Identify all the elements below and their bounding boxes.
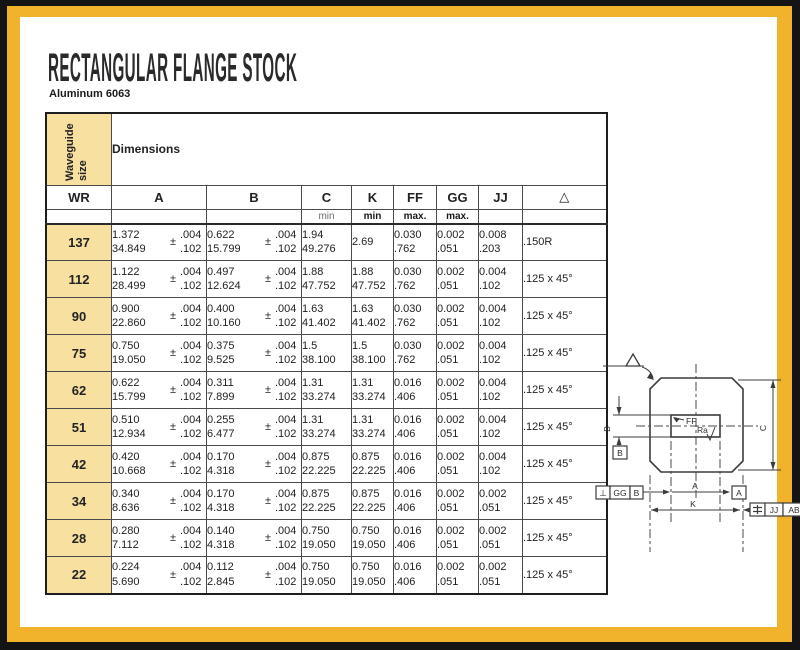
arrowhead-up-icon: [771, 380, 776, 388]
dim-c-cell: 1.8847.752: [302, 261, 352, 298]
dim-jj-cell: 0.004.102: [479, 372, 523, 409]
dim-a-cell: 0.42010.668 ± .004.102: [112, 446, 207, 483]
ff-mm: .406: [394, 575, 436, 589]
ff-inch: 0.030: [394, 339, 436, 353]
b-tol-mm: .102: [275, 427, 301, 441]
k-mm: 38.100: [352, 353, 393, 367]
k-inch: 1.5: [352, 339, 393, 353]
a-tol-inch: .004: [180, 339, 206, 353]
table-row: 28 0.2807.112 ± .004.102 0.1404.318 ± .0…: [46, 520, 607, 557]
b-inch: 0.622: [207, 228, 261, 242]
gg-mm: .051: [437, 353, 478, 367]
a-inch: 1.122: [112, 265, 166, 279]
a-tol-mm: .102: [180, 242, 206, 256]
b-mm: 4.318: [207, 464, 261, 478]
gg-inch: 0.002: [437, 376, 478, 390]
k-mm: 19.050: [352, 538, 393, 552]
jj-mm: .102: [479, 390, 522, 404]
b-mm: 10.160: [207, 316, 261, 330]
dimensions-header-cell: Dimensions: [112, 113, 607, 185]
arrowhead-right-icon: [663, 490, 670, 495]
fcf-perp-datum: B: [634, 488, 640, 498]
k-mm: 22.225: [352, 464, 393, 478]
a-tol-mm: .102: [180, 464, 206, 478]
k-inch: 0.750: [352, 560, 393, 574]
dimensions-table: Waveguide size Dimensions WR A B C K FF …: [45, 112, 608, 595]
dim-a-cell: 0.2245.690 ± .004.102: [112, 557, 207, 594]
col-header-ff: FF: [394, 185, 437, 209]
b-tol-mm: .102: [275, 575, 301, 589]
c-mm: 22.225: [302, 501, 351, 515]
b-mm: 4.318: [207, 538, 261, 552]
dim-k-cell: 0.75019.050: [352, 557, 394, 594]
subheader-ff-max: max.: [394, 209, 437, 224]
jj-inch: 0.004: [479, 376, 522, 390]
b-tol-mm: .102: [275, 538, 301, 552]
b-tol-inch: .004: [275, 265, 301, 279]
subheader-c-min: min: [302, 209, 352, 224]
b-tol-inch: .004: [275, 413, 301, 427]
b-inch: 0.112: [207, 560, 261, 574]
dim-gg-cell: 0.002.051: [437, 446, 479, 483]
corner-chamfer-triangle-icon: [626, 354, 640, 366]
ff-inch: 0.030: [394, 302, 436, 316]
b-tol-inch: .004: [275, 524, 301, 538]
ff-mm: .406: [394, 390, 436, 404]
arrowhead-up-icon: [617, 437, 622, 445]
gg-inch: 0.002: [437, 413, 478, 427]
plus-minus-sign: ±: [261, 347, 275, 359]
jj-inch: 0.002: [479, 560, 522, 574]
dim-ff-cell: 0.030.762: [394, 298, 437, 335]
subheader-row: min min max. max.: [46, 209, 607, 224]
b-tol-mm: .102: [275, 501, 301, 515]
b-tol-mm: .102: [275, 242, 301, 256]
gg-inch: 0.002: [437, 450, 478, 464]
jj-mm: .051: [479, 501, 522, 515]
table-row: 112 1.12228.499 ± .004.102 0.49712.624 ±…: [46, 261, 607, 298]
plus-minus-sign: ±: [261, 532, 275, 544]
table-row: 90 0.90022.860 ± .004.102 0.40010.160 ± …: [46, 298, 607, 335]
gg-mm: .051: [437, 575, 478, 589]
plus-minus-sign: ±: [166, 236, 180, 248]
a-inch: 0.420: [112, 450, 166, 464]
dim-c-cell: 1.9449.276: [302, 224, 352, 261]
dim-c-cell: 1.538.100: [302, 335, 352, 372]
a-inch: 0.280: [112, 524, 166, 538]
b-tol-inch: .004: [275, 302, 301, 316]
b-tol-mm: .102: [275, 353, 301, 367]
c-mm: 41.402: [302, 316, 351, 330]
col-header-wr: WR: [46, 185, 112, 209]
plus-minus-sign: ±: [261, 458, 275, 470]
c-mm: 19.050: [302, 538, 351, 552]
fcf-sym-tolerance: JJ: [770, 505, 779, 515]
a-mm: 12.934: [112, 427, 166, 441]
a-tol-inch: .004: [180, 450, 206, 464]
col-header-b: B: [207, 185, 302, 209]
a-mm: 15.799: [112, 390, 166, 404]
wr-cell: 22: [46, 557, 112, 594]
dim-a-cell: 0.62215.799 ± .004.102: [112, 372, 207, 409]
jj-mm: .051: [479, 575, 522, 589]
a-tol-inch: .004: [180, 302, 206, 316]
table-top-header-row: Waveguide size Dimensions: [46, 113, 607, 185]
k-dim-label: K: [690, 499, 696, 509]
k-mm: 22.225: [352, 501, 393, 515]
wr-cell: 42: [46, 446, 112, 483]
k-mm: 33.274: [352, 427, 393, 441]
plus-minus-sign: ±: [166, 310, 180, 322]
a-tol-mm: .102: [180, 575, 206, 589]
gg-mm: .051: [437, 242, 478, 256]
dim-jj-cell: 0.002.051: [479, 483, 523, 520]
b-mm: 6.477: [207, 427, 261, 441]
ff-mm: .406: [394, 464, 436, 478]
gg-mm: .051: [437, 538, 478, 552]
b-tol-inch: .004: [275, 376, 301, 390]
dim-k-cell: 0.87522.225: [352, 446, 394, 483]
page-content: RECTANGULAR FLANGE STOCK Aluminum 6063 W…: [20, 17, 777, 627]
ff-inch: 0.016: [394, 376, 436, 390]
dim-a-cell: 1.12228.499 ± .004.102: [112, 261, 207, 298]
a-tol-inch: .004: [180, 265, 206, 279]
b-tol-mm: .102: [275, 390, 301, 404]
table-row: 75 0.75019.050 ± .004.102 0.3759.525 ± .…: [46, 335, 607, 372]
plus-minus-sign: ±: [166, 569, 180, 581]
dim-jj-cell: 0.004.102: [479, 446, 523, 483]
gg-mm: .051: [437, 501, 478, 515]
ff-mm: .406: [394, 427, 436, 441]
a-mm: 19.050: [112, 353, 166, 367]
k-inch: 0.875: [352, 450, 393, 464]
jj-mm: .102: [479, 427, 522, 441]
b-tol-mm: .102: [275, 464, 301, 478]
plus-minus-sign: ±: [261, 310, 275, 322]
dim-k-cell: 0.75019.050: [352, 520, 394, 557]
dim-k-cell: 0.87522.225: [352, 483, 394, 520]
a-tol-inch: .004: [180, 228, 206, 242]
dim-k-cell: 2.69: [352, 224, 394, 261]
ff-mm: .762: [394, 316, 436, 330]
b-tol-mm: .102: [275, 316, 301, 330]
wr-cell: 62: [46, 372, 112, 409]
table-row: 22 0.2245.690 ± .004.102 0.1122.845 ± .0…: [46, 557, 607, 594]
jj-inch: 0.004: [479, 450, 522, 464]
c-inch: 1.5: [302, 339, 351, 353]
a-inch: 1.372: [112, 228, 166, 242]
dim-k-cell: 1.6341.402: [352, 298, 394, 335]
dim-ff-cell: 0.030.762: [394, 261, 437, 298]
subheader-gg-max: max.: [437, 209, 479, 224]
b-mm: 15.799: [207, 242, 261, 256]
gg-mm: .051: [437, 316, 478, 330]
page-title: RECTANGULAR FLANGE STOCK: [48, 47, 297, 89]
b-inch: 0.140: [207, 524, 261, 538]
plus-minus-sign: ±: [166, 273, 180, 285]
b-tol-mm: .102: [275, 279, 301, 293]
dim-a-cell: 0.90022.860 ± .004.102: [112, 298, 207, 335]
arrowhead-right-icon: [733, 508, 740, 513]
column-header-row: WR A B C K FF GG JJ △: [46, 185, 607, 209]
jj-inch: 0.004: [479, 339, 522, 353]
subheader-k-min: min: [352, 209, 394, 224]
table-row: 51 0.51012.934 ± .004.102 0.2556.477 ± .…: [46, 409, 607, 446]
b-inch: 0.255: [207, 413, 261, 427]
a-inch: 0.510: [112, 413, 166, 427]
subheader-empty: [479, 209, 523, 224]
a-mm: 5.690: [112, 575, 166, 589]
b-mm: 7.899: [207, 390, 261, 404]
b-mm: 4.318: [207, 501, 261, 515]
k-mm: 47.752: [352, 279, 393, 293]
dim-b-cell: 0.1122.845 ± .004.102: [207, 557, 302, 594]
plus-minus-sign: ±: [261, 421, 275, 433]
a-tol-mm: .102: [180, 353, 206, 367]
plus-minus-sign: ±: [261, 495, 275, 507]
subheader-empty: [46, 209, 112, 224]
c-inch: 1.88: [302, 265, 351, 279]
dim-jj-cell: 0.004.102: [479, 261, 523, 298]
fcf-sym-datum: AB: [788, 505, 800, 515]
plus-minus-sign: ±: [166, 458, 180, 470]
dim-jj-cell: 0.002.051: [479, 557, 523, 594]
a-tol-mm: .102: [180, 390, 206, 404]
waveguide-size-corner-cell: Waveguide size: [46, 113, 112, 185]
col-header-triangle-icon: △: [523, 185, 607, 209]
b-mm: 12.624: [207, 279, 261, 293]
gg-mm: .051: [437, 464, 478, 478]
plus-minus-sign: ±: [261, 569, 275, 581]
flange-drawing: FF Ra B C A K B A GG B JJ AB ⊥: [588, 340, 800, 580]
dim-ff-cell: 0.016.406: [394, 483, 437, 520]
dim-b-cell: 0.3759.525 ± .004.102: [207, 335, 302, 372]
dim-a-cell: 0.75019.050 ± .004.102: [112, 335, 207, 372]
b-mm: 2.845: [207, 575, 261, 589]
b-inch: 0.311: [207, 376, 261, 390]
dim-gg-cell: 0.002.051: [437, 557, 479, 594]
a-tol-inch: .004: [180, 487, 206, 501]
dim-gg-cell: 0.002.051: [437, 372, 479, 409]
dim-b-cell: 0.1704.318 ± .004.102: [207, 483, 302, 520]
col-header-gg: GG: [437, 185, 479, 209]
dim-c-cell: 1.3133.274: [302, 409, 352, 446]
col-header-a: A: [112, 185, 207, 209]
col-header-c: C: [302, 185, 352, 209]
ff-inch: 0.016: [394, 487, 436, 501]
ff-mm: .762: [394, 353, 436, 367]
b-mm: 9.525: [207, 353, 261, 367]
dim-k-cell: 1.538.100: [352, 335, 394, 372]
jj-inch: 0.004: [479, 265, 522, 279]
wr-cell: 90: [46, 298, 112, 335]
b-inch: 0.497: [207, 265, 261, 279]
a-tol-mm: .102: [180, 279, 206, 293]
dim-c-cell: 0.87522.225: [302, 483, 352, 520]
k-inch: 2.69: [352, 235, 393, 249]
wr-cell: 137: [46, 224, 112, 261]
dim-c-cell: 0.75019.050: [302, 557, 352, 594]
dim-gg-cell: 0.002.051: [437, 409, 479, 446]
jj-inch: 0.008: [479, 228, 522, 242]
ff-mm: .406: [394, 501, 436, 515]
dim-gg-cell: 0.002.051: [437, 520, 479, 557]
ff-mm: .762: [394, 242, 436, 256]
jj-mm: .102: [479, 279, 522, 293]
ra-label: Ra: [697, 425, 708, 435]
gg-inch: 0.002: [437, 339, 478, 353]
c-inch: 0.875: [302, 487, 351, 501]
ff-inch: 0.016: [394, 524, 436, 538]
dim-ff-cell: 0.030.762: [394, 335, 437, 372]
b-inch: 0.400: [207, 302, 261, 316]
a-mm: 28.499: [112, 279, 166, 293]
b-tol-inch: .004: [275, 450, 301, 464]
page-subtitle: Aluminum 6063: [49, 88, 130, 100]
a-dim-label: A: [692, 481, 698, 491]
c-inch: 1.31: [302, 376, 351, 390]
c-mm: 47.752: [302, 279, 351, 293]
a-tol-inch: .004: [180, 376, 206, 390]
gg-inch: 0.002: [437, 487, 478, 501]
k-inch: 1.88: [352, 265, 393, 279]
dim-a-cell: 0.51012.934 ± .004.102: [112, 409, 207, 446]
k-mm: 41.402: [352, 316, 393, 330]
plus-minus-sign: ±: [166, 421, 180, 433]
gg-inch: 0.002: [437, 524, 478, 538]
c-mm: 22.225: [302, 464, 351, 478]
a-inch: 0.750: [112, 339, 166, 353]
ff-label: FF: [686, 416, 696, 426]
dim-b-cell: 0.40010.160 ± .004.102: [207, 298, 302, 335]
gg-mm: .051: [437, 390, 478, 404]
a-mm: 34.849: [112, 242, 166, 256]
flange-drawing-svg: FF Ra B C A K B A GG B JJ AB ⊥: [588, 340, 800, 575]
arrowhead-left-icon: [651, 508, 658, 513]
dim-a-cell: 0.3408.636 ± .004.102: [112, 483, 207, 520]
jj-mm: .102: [479, 353, 522, 367]
c-inch: 1.63: [302, 302, 351, 316]
dim-c-cell: 0.75019.050: [302, 520, 352, 557]
c-mm: 38.100: [302, 353, 351, 367]
b-inch: 0.375: [207, 339, 261, 353]
b-inch: 0.170: [207, 487, 261, 501]
jj-inch: 0.004: [479, 413, 522, 427]
c-mm: 49.276: [302, 242, 351, 256]
dim-jj-cell: 0.002.051: [479, 520, 523, 557]
gg-mm: .051: [437, 427, 478, 441]
ff-mm: .406: [394, 538, 436, 552]
table-row: 62 0.62215.799 ± .004.102 0.3117.899 ± .…: [46, 372, 607, 409]
ff-inch: 0.016: [394, 413, 436, 427]
dim-b-cell: 0.1704.318 ± .004.102: [207, 446, 302, 483]
a-tol-inch: .004: [180, 413, 206, 427]
arrowhead-down-icon: [617, 407, 622, 415]
ff-inch: 0.016: [394, 560, 436, 574]
a-inch: 0.224: [112, 560, 166, 574]
dim-b-cell: 0.49712.624 ± .004.102: [207, 261, 302, 298]
dim-ff-cell: 0.016.406: [394, 446, 437, 483]
gg-mm: .051: [437, 279, 478, 293]
ff-inch: 0.016: [394, 450, 436, 464]
subheader-empty: [523, 209, 607, 224]
plus-minus-sign: ±: [261, 273, 275, 285]
ff-inch: 0.030: [394, 265, 436, 279]
jj-mm: .051: [479, 538, 522, 552]
gg-inch: 0.002: [437, 228, 478, 242]
k-inch: 0.750: [352, 524, 393, 538]
plus-minus-sign: ±: [261, 384, 275, 396]
gg-inch: 0.002: [437, 302, 478, 316]
dim-c-cell: 0.87522.225: [302, 446, 352, 483]
gg-inch: 0.002: [437, 560, 478, 574]
page-black-frame: RECTANGULAR FLANGE STOCK Aluminum 6063 W…: [0, 0, 800, 650]
a-tol-mm: .102: [180, 427, 206, 441]
a-tol-inch: .004: [180, 560, 206, 574]
c-inch: 0.875: [302, 450, 351, 464]
dim-b-cell: 0.3117.899 ± .004.102: [207, 372, 302, 409]
plus-minus-sign: ±: [166, 347, 180, 359]
k-mm: 33.274: [352, 390, 393, 404]
table-row: 42 0.42010.668 ± .004.102 0.1704.318 ± .…: [46, 446, 607, 483]
subheader-empty: [112, 209, 207, 224]
arrowhead-down-icon: [771, 462, 776, 470]
c-mm: 33.274: [302, 427, 351, 441]
a-mm: 8.636: [112, 501, 166, 515]
arrowhead-right-icon: [723, 490, 730, 495]
dim-k-cell: 1.8847.752: [352, 261, 394, 298]
subheader-empty: [207, 209, 302, 224]
b-dim-label: B: [602, 426, 612, 432]
dim-gg-cell: 0.002.051: [437, 261, 479, 298]
dim-a-cell: 1.37234.849 ± .004.102: [112, 224, 207, 261]
c-inch: 1.31: [302, 413, 351, 427]
b-tol-inch: .004: [275, 487, 301, 501]
a-tol-mm: .102: [180, 316, 206, 330]
b-tol-inch: .004: [275, 228, 301, 242]
c-inch: 1.94: [302, 228, 351, 242]
c-mm: 19.050: [302, 575, 351, 589]
dim-ff-cell: 0.016.406: [394, 372, 437, 409]
wr-cell: 51: [46, 409, 112, 446]
plus-minus-sign: ±: [166, 384, 180, 396]
c-dim-label: C: [758, 425, 768, 431]
waveguide-size-label: Waveguide size: [64, 117, 94, 181]
dim-gg-cell: 0.002.051: [437, 298, 479, 335]
dim-jj-cell: 0.008.203: [479, 224, 523, 261]
ff-mm: .762: [394, 279, 436, 293]
arrowhead-ff-icon: [673, 417, 680, 423]
c-inch: 0.750: [302, 524, 351, 538]
arrowhead-left-icon: [743, 508, 750, 513]
catalog-page: { "page": { "title": "RECTANGULAR FLANGE…: [0, 0, 800, 650]
datum-b-label: B: [617, 448, 623, 458]
ff-inch: 0.030: [394, 228, 436, 242]
a-inch: 0.340: [112, 487, 166, 501]
corner-chamfer-cell: .150R: [523, 224, 607, 261]
k-mm: 19.050: [352, 575, 393, 589]
a-tol-inch: .004: [180, 524, 206, 538]
dim-b-cell: 0.62215.799 ± .004.102: [207, 224, 302, 261]
jj-inch: 0.002: [479, 487, 522, 501]
col-header-k: K: [352, 185, 394, 209]
fcf-perp-tolerance: GG: [613, 488, 626, 498]
table-row: 137 1.37234.849 ± .004.102 0.62215.799 ±…: [46, 224, 607, 261]
plus-minus-sign: ±: [261, 236, 275, 248]
datum-a-label: A: [736, 488, 742, 498]
page-gold-frame: RECTANGULAR FLANGE STOCK Aluminum 6063 W…: [7, 6, 792, 642]
dim-a-cell: 0.2807.112 ± .004.102: [112, 520, 207, 557]
